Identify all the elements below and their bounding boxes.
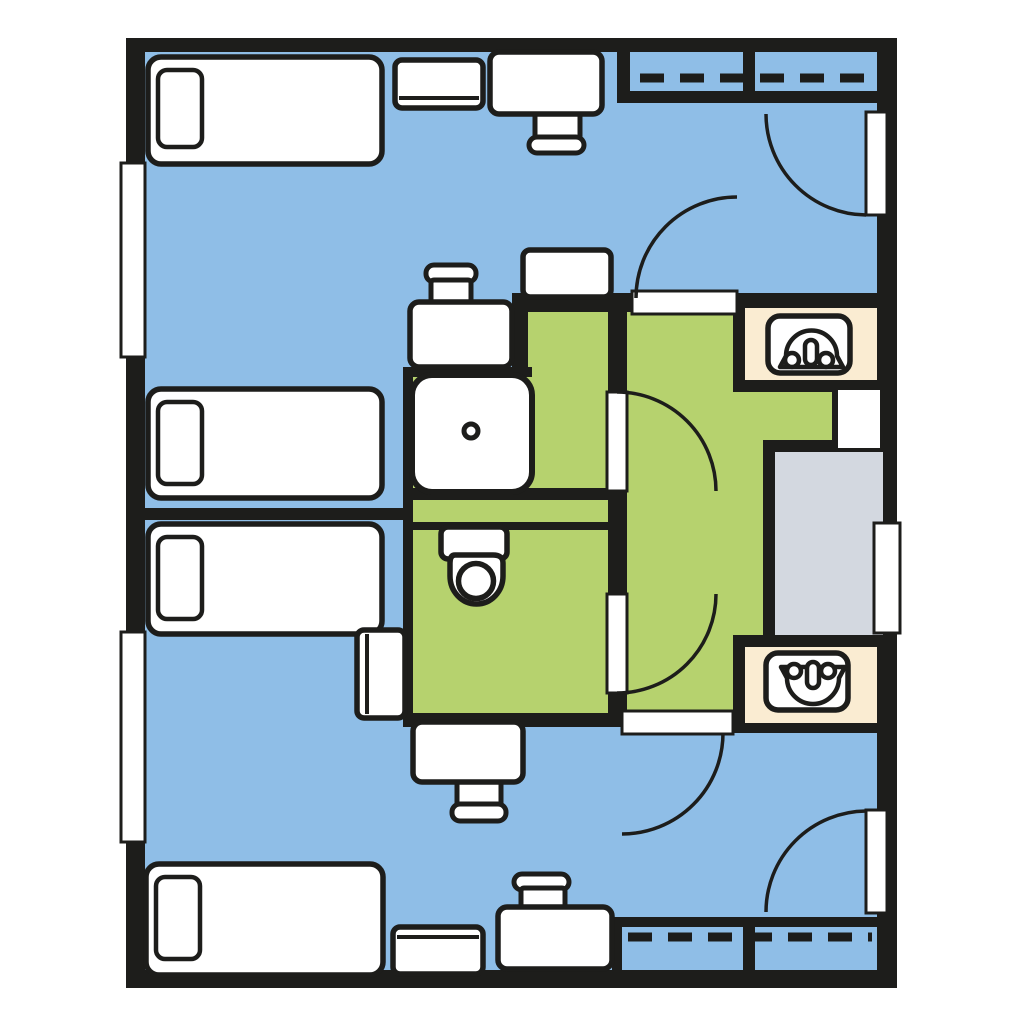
bed-1-pillow [158, 70, 202, 147]
sink-bottom-icon-circle-3 [787, 664, 801, 678]
bed-2-pillow [158, 402, 202, 484]
entry-door-bottom-gap [866, 810, 887, 913]
sink-bottom-icon-rect-2 [807, 662, 819, 688]
door-leaf-toilet-room [607, 594, 627, 693]
shower-stall-icon-circle-1 [464, 424, 478, 438]
table-bottom-wall [393, 927, 483, 974]
wall-bath-east-upper [608, 312, 627, 392]
chair-desk-top-back [529, 137, 584, 153]
entry-door-top-gap [866, 112, 887, 215]
sink-top-icon-circle-4 [819, 353, 833, 367]
wall-shower-entry-edge [832, 388, 838, 450]
dresser-mid-top [523, 250, 611, 297]
window-left-upper [121, 163, 145, 357]
desk-top-wall [490, 52, 602, 114]
desk-bottom-wall [498, 907, 612, 969]
desk-nook-bottom [413, 722, 523, 782]
floor-plan-page [0, 0, 1024, 1024]
floor-plumbing-chase-strip [403, 500, 627, 522]
floor-plan-svg [0, 0, 1024, 1024]
wall-closet-top-divider [743, 45, 755, 103]
bed-4-pillow [156, 877, 200, 959]
toilet-icon-circle-2 [459, 564, 494, 599]
door-leaf-shower-room [607, 392, 627, 491]
chair-desk-nook-bottom-back [452, 804, 506, 821]
wall-suite-divider [126, 508, 413, 520]
wall-chase-south [403, 522, 627, 530]
floor-toilet-room [403, 530, 627, 713]
nightstand-mid-bottom [357, 630, 405, 718]
wall-bath-east-mid [608, 490, 627, 595]
sink-bottom-icon-circle-4 [821, 664, 835, 678]
window-left-lower [121, 632, 145, 842]
window-right [874, 523, 900, 633]
doorway-top-bedroom [632, 291, 737, 314]
bed-3-pillow [158, 537, 202, 619]
table-top-wall [395, 60, 483, 108]
wall-closet-bottom-divider [743, 917, 755, 970]
shower-room-entry [838, 390, 880, 448]
desk-nook-top [410, 302, 512, 367]
doorway-bottom-bedroom [622, 711, 733, 734]
sink-top-icon-rect-2 [805, 340, 817, 365]
sink-top-icon-circle-3 [785, 353, 799, 367]
shower-room-floor [775, 452, 883, 635]
